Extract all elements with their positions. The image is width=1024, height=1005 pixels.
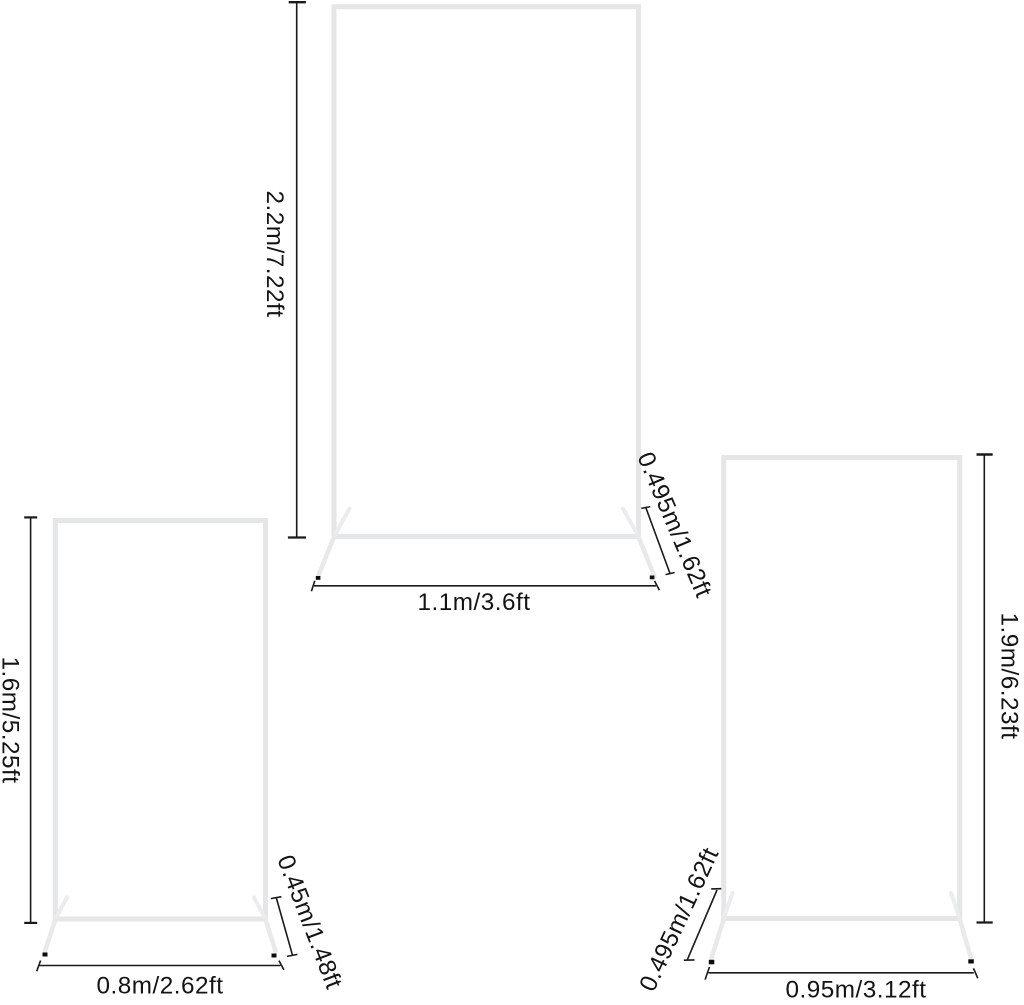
- svg-text:1.9m/6.23ft: 1.9m/6.23ft: [996, 612, 1023, 739]
- svg-text:0.95m/3.12ft: 0.95m/3.12ft: [785, 977, 926, 1004]
- svg-text:1.6m/5.25ft: 1.6m/5.25ft: [0, 656, 24, 783]
- svg-text:0.8m/2.62ft: 0.8m/2.62ft: [96, 972, 223, 999]
- svg-text:2.2m/7.22ft: 2.2m/7.22ft: [261, 190, 288, 317]
- svg-text:1.1m/3.6ft: 1.1m/3.6ft: [417, 589, 530, 616]
